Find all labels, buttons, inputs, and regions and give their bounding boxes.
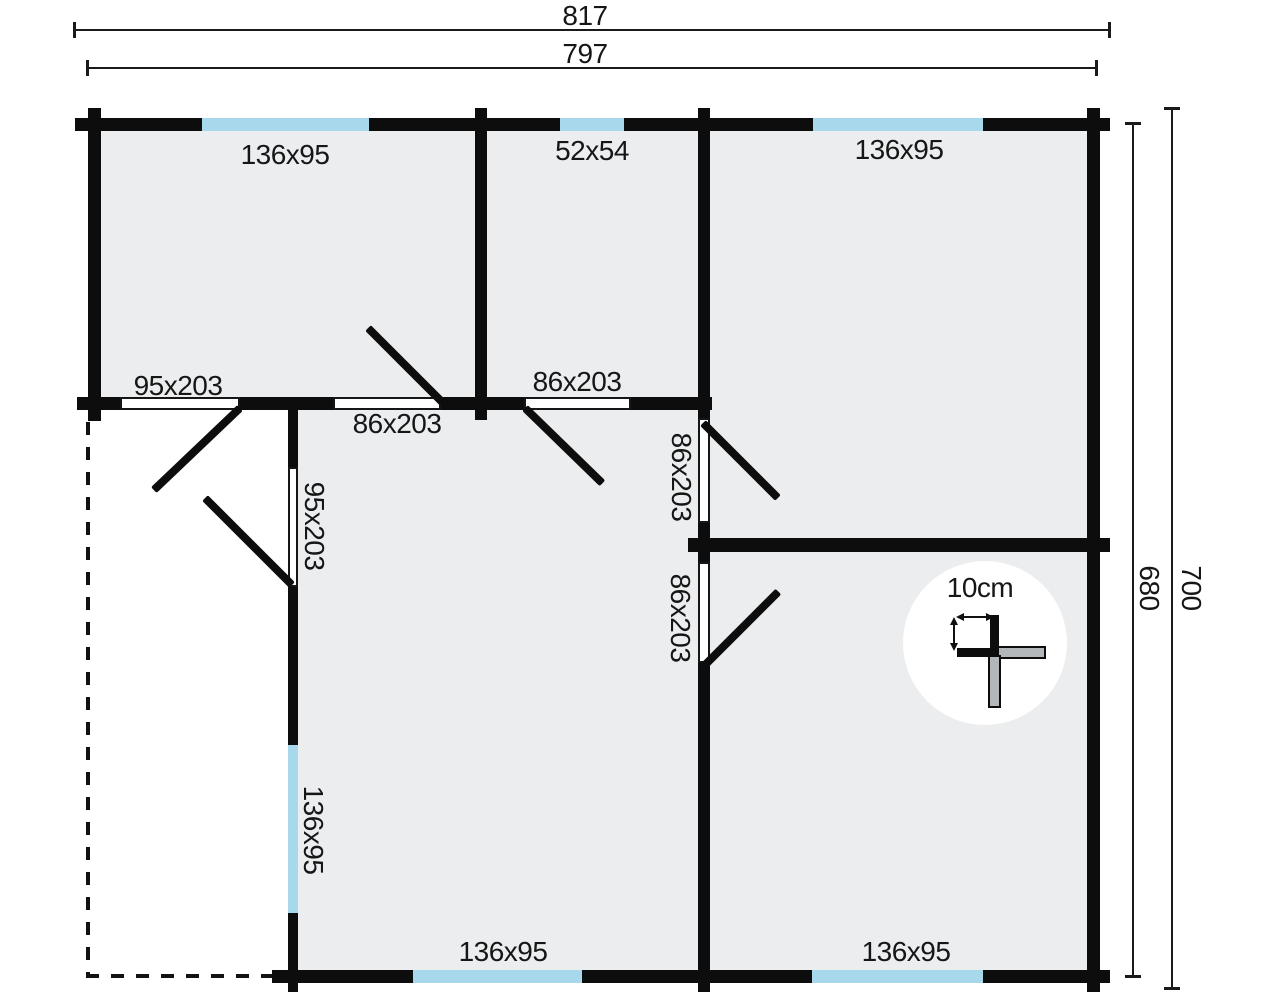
wall-divider-1: [475, 108, 487, 420]
scale-cross-arm-bottom: [988, 655, 1001, 708]
wall-divider-2-upper: [698, 108, 710, 420]
window-label-top-middle: 52x54: [555, 137, 629, 165]
window-bottom-left: [413, 970, 582, 983]
window-top-left: [202, 118, 369, 131]
dim-tick: [73, 22, 76, 38]
door-label-right-top: 86x203: [667, 433, 695, 522]
window-left-vertical: [288, 745, 298, 913]
dim-tick: [1125, 122, 1141, 125]
window-label-bottom-left: 136x95: [459, 938, 548, 966]
dim-line-700: [1171, 108, 1173, 990]
window-top-middle: [560, 118, 624, 131]
dim-tick: [1164, 107, 1180, 110]
door-opening-right-bottom: [698, 562, 710, 663]
wall-left: [88, 108, 101, 421]
scale-arrow-h-line: [963, 616, 987, 618]
scale-cross-arm-right: [997, 646, 1046, 659]
scale-label: 10cm: [947, 574, 1013, 602]
wall-bottom: [272, 970, 1110, 983]
terrace-dashed-bottom: [86, 974, 274, 978]
window-label-left: 136x95: [299, 786, 327, 875]
door-label-room-left: 86x203: [353, 410, 442, 438]
wall-divider-3-lower: [288, 913, 298, 992]
window-label-top-left: 136x95: [241, 141, 330, 169]
wall-interior-mid: [688, 538, 1110, 552]
window-top-right: [813, 118, 983, 131]
window-label-top-right: 136x95: [855, 136, 944, 164]
wall-divider-2-mid: [698, 523, 710, 562]
dim-tick: [1108, 22, 1111, 38]
terrace-dashed-left: [86, 422, 90, 978]
dim-tick: [1095, 60, 1098, 76]
wall-divider-3-mid: [288, 587, 298, 745]
scale-arrow-v-top: [950, 617, 958, 625]
door-label-right-bottom: 86x203: [666, 574, 694, 663]
wall-divider-2-lower: [698, 663, 710, 992]
dim-tick: [1125, 975, 1141, 978]
dim-label-right-wall: 680: [1135, 565, 1163, 610]
window-bottom-right: [812, 970, 983, 983]
scale-cross-arm-top: [990, 615, 999, 657]
floor-plan: 817 797 680 700 136x95 52x54 136x95 136x…: [0, 0, 1280, 994]
room-fill-living: [288, 410, 710, 970]
dim-tick: [1164, 987, 1180, 990]
door-opening-living: [524, 397, 631, 410]
door-label-living: 86x203: [533, 368, 622, 396]
dim-line-680: [1132, 123, 1134, 977]
dim-tick: [86, 60, 89, 76]
door-swing-hall: [202, 495, 295, 588]
door-swing-terrace: [151, 405, 243, 493]
dim-label-top-overall: 817: [562, 2, 607, 30]
wall-divider-3-upper: [288, 410, 298, 467]
door-opening-hall: [288, 467, 298, 587]
door-label-terrace: 95x203: [134, 372, 223, 400]
dim-label-right-overall: 700: [1177, 565, 1205, 610]
window-label-bottom-right: 136x95: [862, 938, 951, 966]
scale-arrow-v-line: [953, 624, 955, 644]
dim-label-top-wall: 797: [562, 40, 607, 68]
door-label-hall: 95x203: [300, 482, 328, 571]
scale-arrow-v-bottom: [950, 643, 958, 651]
scale-arrow-h-right: [986, 613, 994, 621]
